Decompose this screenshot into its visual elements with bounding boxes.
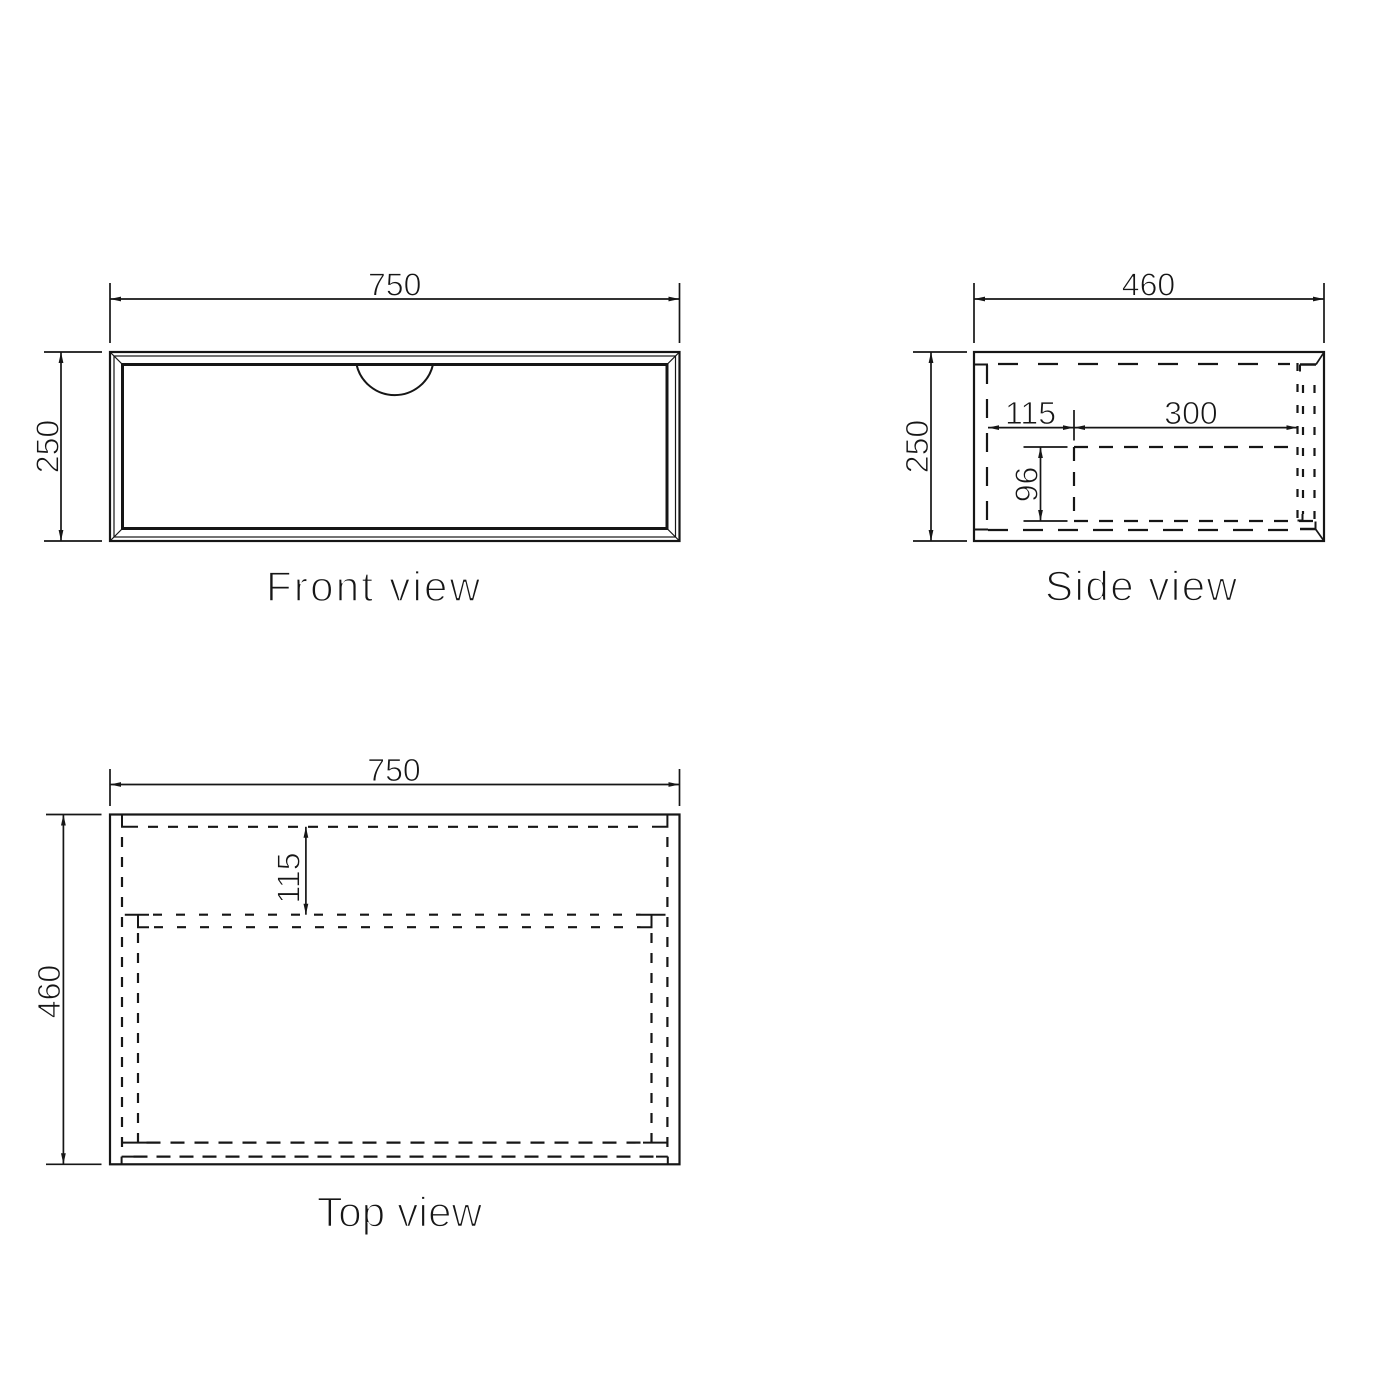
- svg-text:460: 460: [31, 965, 67, 1018]
- svg-text:250: 250: [30, 420, 66, 473]
- svg-text:115: 115: [271, 852, 307, 903]
- svg-text:300: 300: [1164, 395, 1217, 431]
- svg-text:750: 750: [367, 752, 420, 788]
- svg-text:115: 115: [1005, 395, 1056, 431]
- svg-text:460: 460: [1122, 267, 1175, 303]
- svg-text:96: 96: [1009, 467, 1045, 503]
- svg-text:250: 250: [899, 420, 935, 473]
- svg-text:Top view: Top view: [317, 1188, 483, 1235]
- svg-text:750: 750: [368, 267, 421, 303]
- svg-text:Side view: Side view: [1045, 563, 1238, 610]
